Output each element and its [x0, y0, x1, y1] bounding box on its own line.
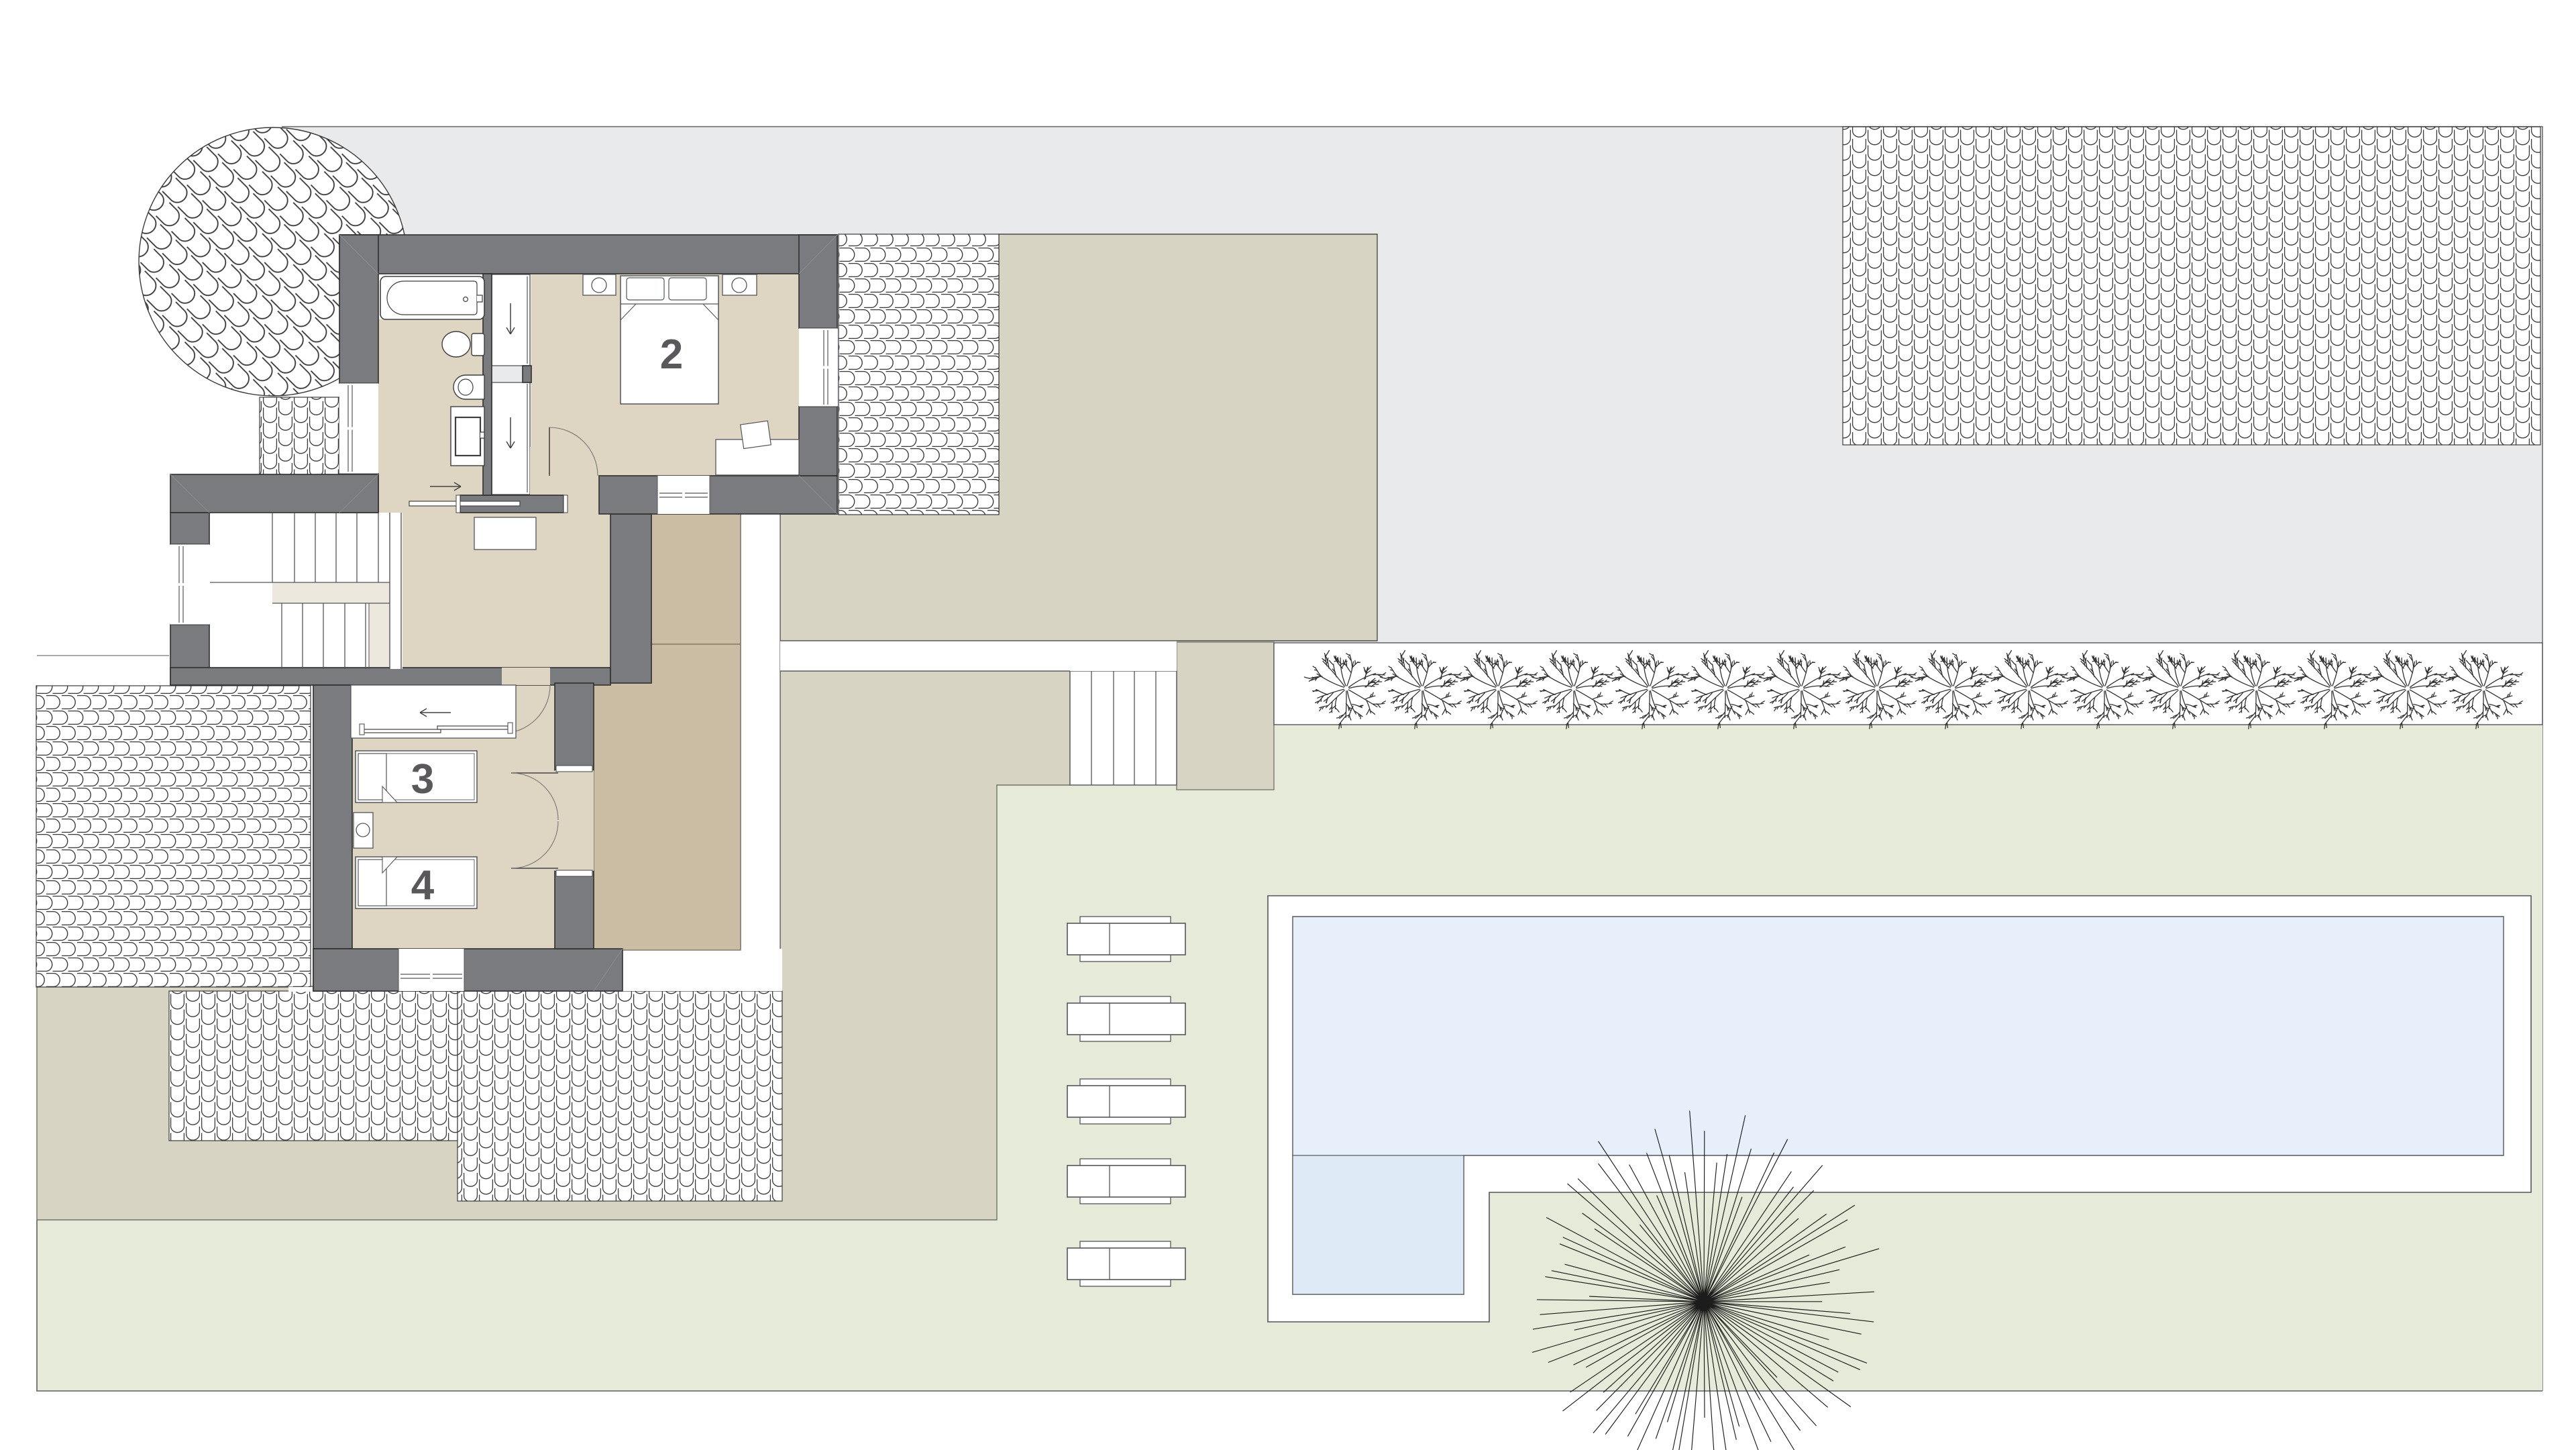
svg-text:4: 4 — [411, 862, 435, 909]
svg-text:3: 3 — [411, 756, 434, 802]
svg-text:2: 2 — [660, 331, 683, 378]
